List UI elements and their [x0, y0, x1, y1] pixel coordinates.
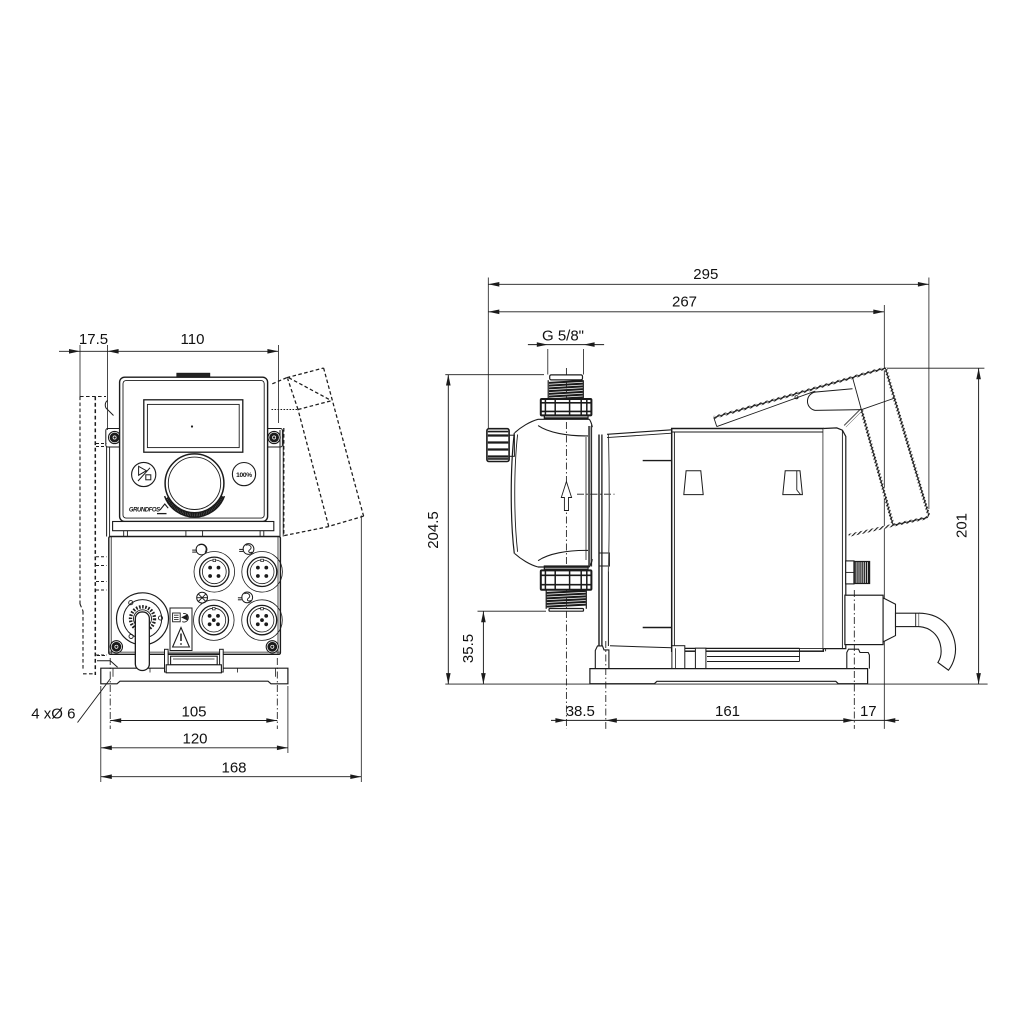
- svg-text:161: 161: [715, 703, 740, 720]
- svg-text:120: 120: [182, 730, 207, 747]
- svg-text:G 5/8": G 5/8": [542, 328, 584, 345]
- svg-text:GRUNDFOS: GRUNDFOS: [129, 508, 160, 514]
- svg-text:4 xØ 6: 4 xØ 6: [31, 706, 75, 723]
- svg-text:267: 267: [672, 293, 697, 310]
- svg-text:295: 295: [693, 266, 718, 283]
- svg-text:204.5: 204.5: [425, 511, 442, 549]
- svg-text:17: 17: [860, 703, 877, 720]
- svg-text:110: 110: [181, 331, 205, 348]
- svg-text:35.5: 35.5: [460, 634, 477, 663]
- svg-text:38.5: 38.5: [566, 703, 595, 720]
- svg-text:105: 105: [181, 703, 206, 720]
- svg-text:100%: 100%: [236, 472, 252, 479]
- svg-text:201: 201: [953, 513, 970, 538]
- svg-text:17.5: 17.5: [79, 331, 108, 348]
- svg-text:168: 168: [221, 759, 246, 776]
